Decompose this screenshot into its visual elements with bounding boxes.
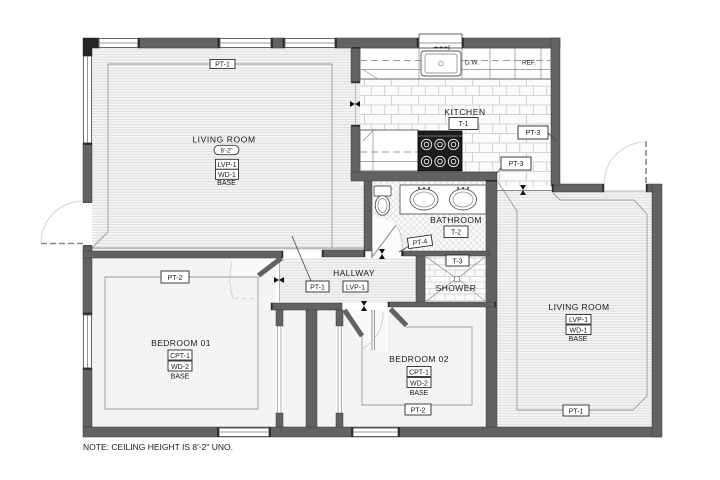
svg-text:BASE: BASE (410, 390, 429, 397)
svg-text:LVP-1: LVP-1 (346, 285, 365, 292)
svg-text:NOTE: CEILING HEIGHT IS 8'-2": NOTE: CEILING HEIGHT IS 8'-2" UNO. (83, 442, 233, 452)
svg-text:T-2: T-2 (451, 230, 461, 237)
svg-text:CPT-1: CPT-1 (409, 370, 429, 377)
svg-text:8'-2": 8'-2" (221, 148, 233, 154)
svg-text:WD-2: WD-2 (410, 381, 428, 388)
svg-text:KITCHEN: KITCHEN (444, 107, 486, 117)
svg-text:PT-1: PT-1 (569, 409, 584, 416)
svg-text:PT-1: PT-1 (310, 285, 325, 292)
svg-text:T-1: T-1 (458, 121, 468, 128)
svg-text:T-3: T-3 (452, 259, 462, 266)
svg-text:WD-2: WD-2 (171, 364, 189, 371)
svg-text:LVP-1: LVP-1 (569, 317, 588, 324)
svg-text:BATHROOM: BATHROOM (430, 215, 482, 225)
svg-text:PT-1: PT-1 (215, 62, 230, 69)
svg-text:CPT-1: CPT-1 (170, 353, 190, 360)
svg-text:PT-3: PT-3 (526, 130, 541, 137)
svg-text:BASE: BASE (217, 180, 236, 187)
svg-text:HALLWAY: HALLWAY (333, 268, 375, 278)
svg-text:BEDROOM 01: BEDROOM 01 (151, 338, 211, 348)
svg-text:WD-1: WD-1 (218, 172, 236, 179)
svg-text:LVP-1: LVP-1 (218, 162, 237, 169)
svg-text:LIVING ROOM: LIVING ROOM (548, 302, 609, 312)
svg-text:PT-2: PT-2 (168, 275, 183, 282)
svg-text:BASE: BASE (569, 336, 588, 343)
svg-text:PT-3: PT-3 (509, 161, 524, 168)
svg-text:D.W.: D.W. (465, 60, 479, 67)
svg-text:REF.: REF. (522, 60, 536, 67)
svg-text:PT-2: PT-2 (411, 408, 426, 415)
svg-text:LIVING ROOM: LIVING ROOM (192, 135, 255, 145)
svg-text:SHOWER: SHOWER (436, 283, 477, 293)
svg-text:BASE: BASE (171, 374, 190, 381)
svg-text:BEDROOM 02: BEDROOM 02 (389, 354, 449, 364)
svg-text:WD-1: WD-1 (570, 328, 588, 335)
